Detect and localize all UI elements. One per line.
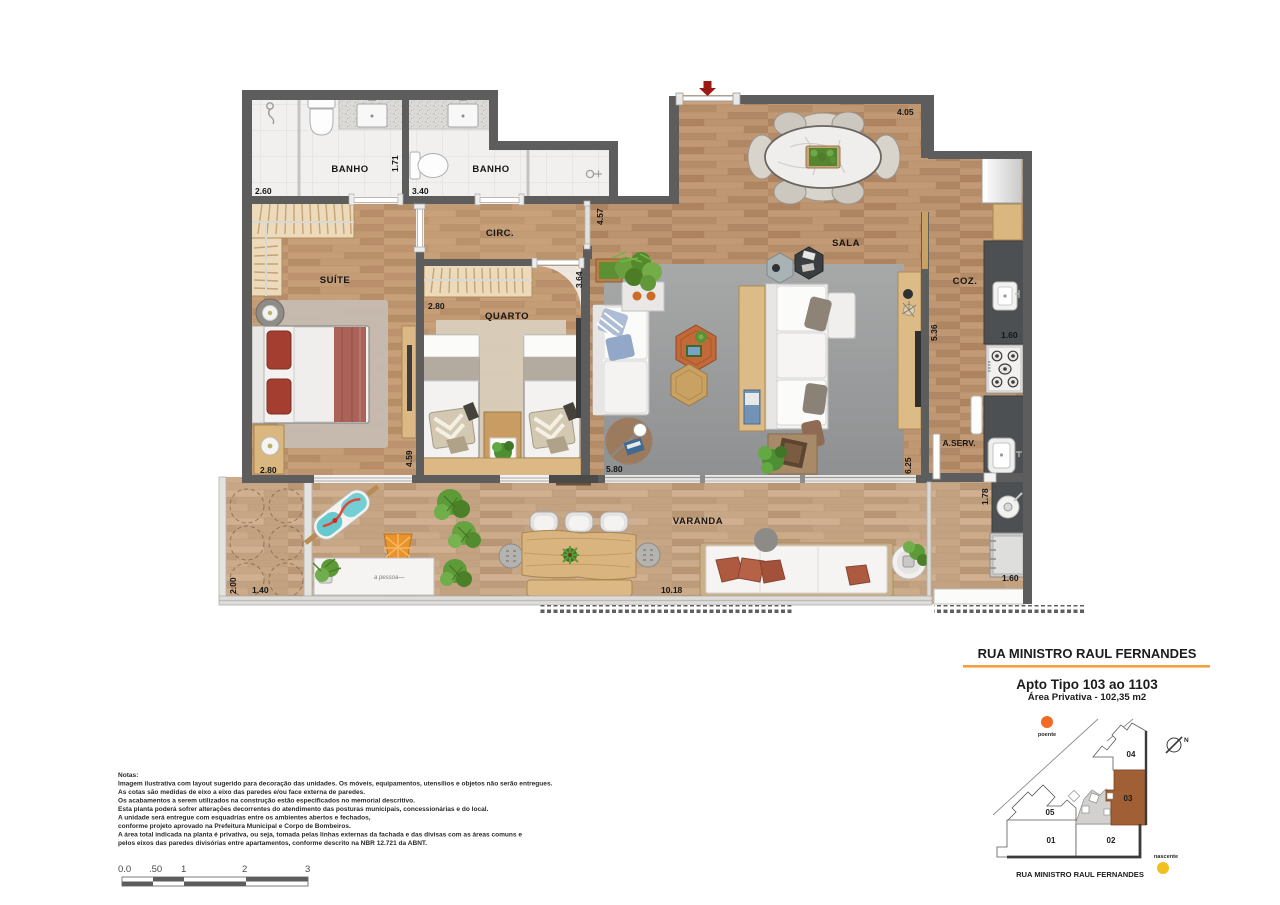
svg-text:BANHO: BANHO [472,164,509,175]
svg-text:Esta planta poderá sofrer alte: Esta planta poderá sofrer alterações dec… [118,806,489,813]
svg-text:A.SERV.: A.SERV. [942,438,975,448]
svg-text:1: 1 [181,864,186,875]
svg-text:4.59: 4.59 [404,450,414,467]
svg-text:2.60: 2.60 [255,186,272,196]
svg-text:COZ.: COZ. [953,276,978,287]
svg-text:5.80: 5.80 [606,464,623,474]
svg-text:N: N [1184,737,1189,744]
svg-text:Os acabamentos a serem utiliza: Os acabamentos a serem utilizados na con… [118,798,415,805]
svg-text:QUARTO: QUARTO [485,311,529,322]
svg-text:4.57: 4.57 [595,208,605,225]
svg-text:SUÍTE: SUÍTE [320,275,350,286]
svg-text:2.00: 2.00 [228,577,238,594]
svg-text:Imagem ilustrativa com layout: Imagem ilustrativa com layout sugerido p… [118,781,553,788]
svg-text:Apto Tipo 103 ao 1103: Apto Tipo 103 ao 1103 [1016,677,1158,692]
svg-text:VARANDA: VARANDA [673,516,723,527]
svg-text:2.80: 2.80 [428,301,445,311]
svg-text:A unidade será entregue com es: A unidade será entregue com esquadrias e… [118,815,371,822]
svg-text:nascente: nascente [1154,854,1178,860]
svg-text:Área Privativa - 102,35 m2: Área Privativa - 102,35 m2 [1028,691,1146,703]
svg-text:01: 01 [1047,836,1056,845]
svg-text:1.78: 1.78 [980,488,990,505]
svg-text:2.80: 2.80 [260,465,277,475]
svg-text:03: 03 [1124,794,1133,803]
svg-text:0.0: 0.0 [118,864,131,875]
svg-text:3: 3 [305,864,310,875]
svg-text:1.71: 1.71 [390,155,400,172]
svg-text:1.40: 1.40 [252,585,269,595]
svg-text:a pessoa—: a pessoa— [374,575,405,581]
svg-text:2: 2 [242,864,247,875]
svg-text:04: 04 [1127,750,1136,759]
svg-text:1.60: 1.60 [1002,573,1019,583]
svg-text:RUA MINISTRO RAUL FERNANDES: RUA MINISTRO RAUL FERNANDES [978,646,1197,661]
svg-text:pelos eixos das paredes divisó: pelos eixos das paredes divisórias entre… [118,840,427,847]
svg-text:A área total indicada na plant: A área total indicada na planta é privat… [118,832,522,839]
svg-text:BANHO: BANHO [331,164,368,175]
svg-text:3.40: 3.40 [412,186,429,196]
svg-text:.50: .50 [149,864,162,875]
svg-text:poente: poente [1038,732,1056,738]
svg-text:02: 02 [1107,836,1116,845]
svg-text:6.25: 6.25 [903,457,913,474]
svg-text:SALA: SALA [832,238,860,249]
svg-text:3.64: 3.64 [574,271,584,288]
svg-text:5.36: 5.36 [929,324,939,341]
svg-text:05: 05 [1046,808,1055,817]
svg-text:CIRC.: CIRC. [486,228,514,239]
svg-text:RUA MINISTRO RAUL FERNANDES: RUA MINISTRO RAUL FERNANDES [1016,870,1144,879]
svg-text:1.60: 1.60 [1001,330,1018,340]
svg-text:4.05: 4.05 [897,107,914,117]
svg-text:As cotas são medidas de eixo a: As cotas são medidas de eixo a eixo das … [118,789,365,796]
svg-text:10.18: 10.18 [661,585,683,595]
svg-text:Notas:: Notas: [118,772,138,779]
svg-text:conforme projeto aprovado na P: conforme projeto aprovado na Prefeitura … [118,823,351,830]
